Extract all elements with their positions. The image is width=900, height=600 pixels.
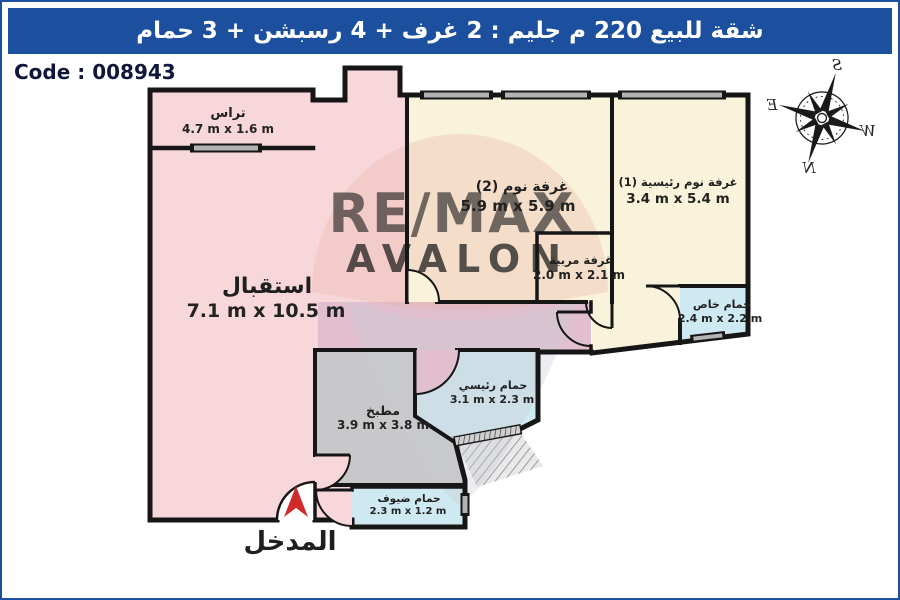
svg-text:3.9 m x 3.8 m: 3.9 m x 3.8 m: [337, 418, 429, 432]
main-bathroom-label: حمام رئيسي 3.1 m x 2.3 m: [450, 379, 534, 406]
svg-text:غرفة نوم (2): غرفة نوم (2): [476, 179, 569, 195]
window-master-bedroom: [618, 91, 726, 100]
compass-rose-icon: S N E W: [765, 56, 879, 177]
compass-e: E: [766, 96, 778, 114]
svg-text:تراس: تراس: [210, 106, 245, 121]
title-bar: شقة للبيع 220 م جليم : 2 غرف + 4 رسبشن +…: [8, 8, 892, 54]
master-bedroom-label: غرفة نوم رئيسية (1) 3.4 m x 5.4 m: [618, 175, 737, 207]
entrance-label: المدخل: [243, 527, 336, 557]
page-title: شقة للبيع 220 م جليم : 2 غرف + 4 رسبشن +…: [136, 18, 763, 44]
svg-text:استقبال: استقبال: [222, 274, 312, 299]
svg-text:7.1 m x 10.5 m: 7.1 m x 10.5 m: [187, 300, 346, 322]
floor-plan: RE/MAX AVALON: [0, 0, 900, 600]
window-guest-bathroom: [461, 493, 470, 516]
svg-text:3.1 m x 2.3 m: 3.1 m x 2.3 m: [450, 393, 534, 406]
compass-s: S: [832, 56, 842, 74]
compass-n: N: [802, 159, 817, 177]
svg-text:مطبخ: مطبخ: [366, 403, 400, 418]
svg-text:حمام ضيوف: حمام ضيوف: [377, 493, 440, 505]
svg-text:غرفة مربية: غرفة مربية: [549, 253, 613, 267]
code-label: Code : 008943: [14, 60, 176, 84]
svg-text:3.4 m x 5.4 m: 3.4 m x 5.4 m: [626, 191, 729, 207]
svg-text:غرفة نوم رئيسية (1): غرفة نوم رئيسية (1): [618, 175, 737, 190]
window-bedroom2-a: [420, 91, 493, 100]
window-bedroom2-b: [501, 91, 591, 100]
compass-w: W: [859, 122, 876, 140]
svg-text:2.4 m x 2.2 m: 2.4 m x 2.2 m: [678, 312, 762, 325]
svg-text:4.7 m x 1.6 m: 4.7 m x 1.6 m: [182, 122, 274, 136]
svg-text:5.9 m x 5.9 m: 5.9 m x 5.9 m: [461, 197, 576, 215]
window-terrace: [190, 144, 262, 153]
svg-text:حمام خاص: حمام خاص: [693, 298, 751, 311]
svg-text:حمام رئيسي: حمام رئيسي: [459, 379, 528, 392]
svg-text:2.0 m x 2.1 m: 2.0 m x 2.1 m: [533, 268, 625, 282]
svg-text:2.3 m x 1.2 m: 2.3 m x 1.2 m: [370, 506, 447, 517]
bedroom-2-label: غرفة نوم (2) 5.9 m x 5.9 m: [461, 179, 576, 215]
